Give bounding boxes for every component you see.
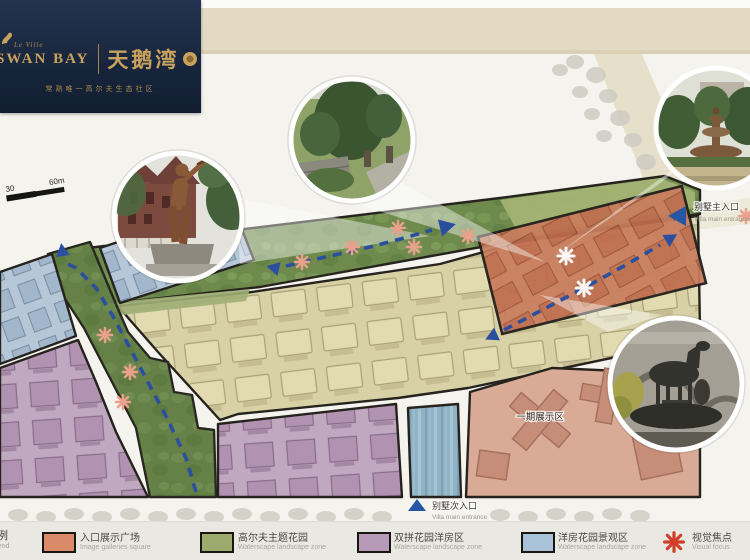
photo-inset-garden [288,76,416,204]
phase1-label: 一期展示区 [516,412,564,423]
legend-swatch-terrace [521,532,555,553]
brand-divider [98,44,99,74]
legend-swatch-golf [200,532,234,553]
seal-icon [183,52,197,66]
legend-label-cn: 视觉焦点 [692,529,732,544]
legend-label-en: Image galleries square [80,544,151,551]
brand-name-en: SWAN BAY [0,51,89,67]
legend-label-cn: 高尔夫主题花园 [238,529,326,544]
sub-entrance-label-en: Villa main entrance [432,514,488,521]
legend-title-en: Legend [0,543,26,550]
legend-label-en: Waterscape landscape zone [238,544,326,551]
legend-title: 图例 Legend [0,527,26,550]
legend-label-cn: 双拼花园洋房区 [394,529,482,544]
brand-tagline: 常熟唯一高尔夫生态社区 [0,84,201,94]
legend-swatch-entry [42,532,76,553]
brand-logo-block: Le Ville SWAN BAY 天鹅湾 常熟唯一高尔夫生态社区 [0,0,201,113]
legend-label-cn: 入口展示广场 [80,529,151,544]
legend-label-en: Waterscape landscape zone [394,544,482,551]
legend-title-cn: 图例 [0,527,26,543]
main-entrance-label-en: Villa main entrance [694,216,750,223]
legend-swatch-duplex [357,532,391,553]
asterisk-icon [662,530,686,554]
main-entrance-label-cn: 别墅主入口 [694,201,739,212]
legend-bar: 图例 Legend 入口展示广场 Image galleries square … [0,521,750,560]
legend-label-cn: 洋房花园景观区 [558,529,646,544]
legend-label-en: Waterscape landscape zone [558,544,646,551]
sub-entrance-label-cn: 别墅次入口 [432,500,477,511]
brand-script: Le Ville [14,41,43,49]
site-plan-page: 别墅主入口 Villa main entrance 别墅次入口 Villa ma… [0,0,750,560]
zone-waterscape [408,404,461,497]
legend-label-en: Visual focus [692,544,732,551]
top-road [195,8,750,54]
brand-name-cn: 天鹅湾 [107,44,179,74]
